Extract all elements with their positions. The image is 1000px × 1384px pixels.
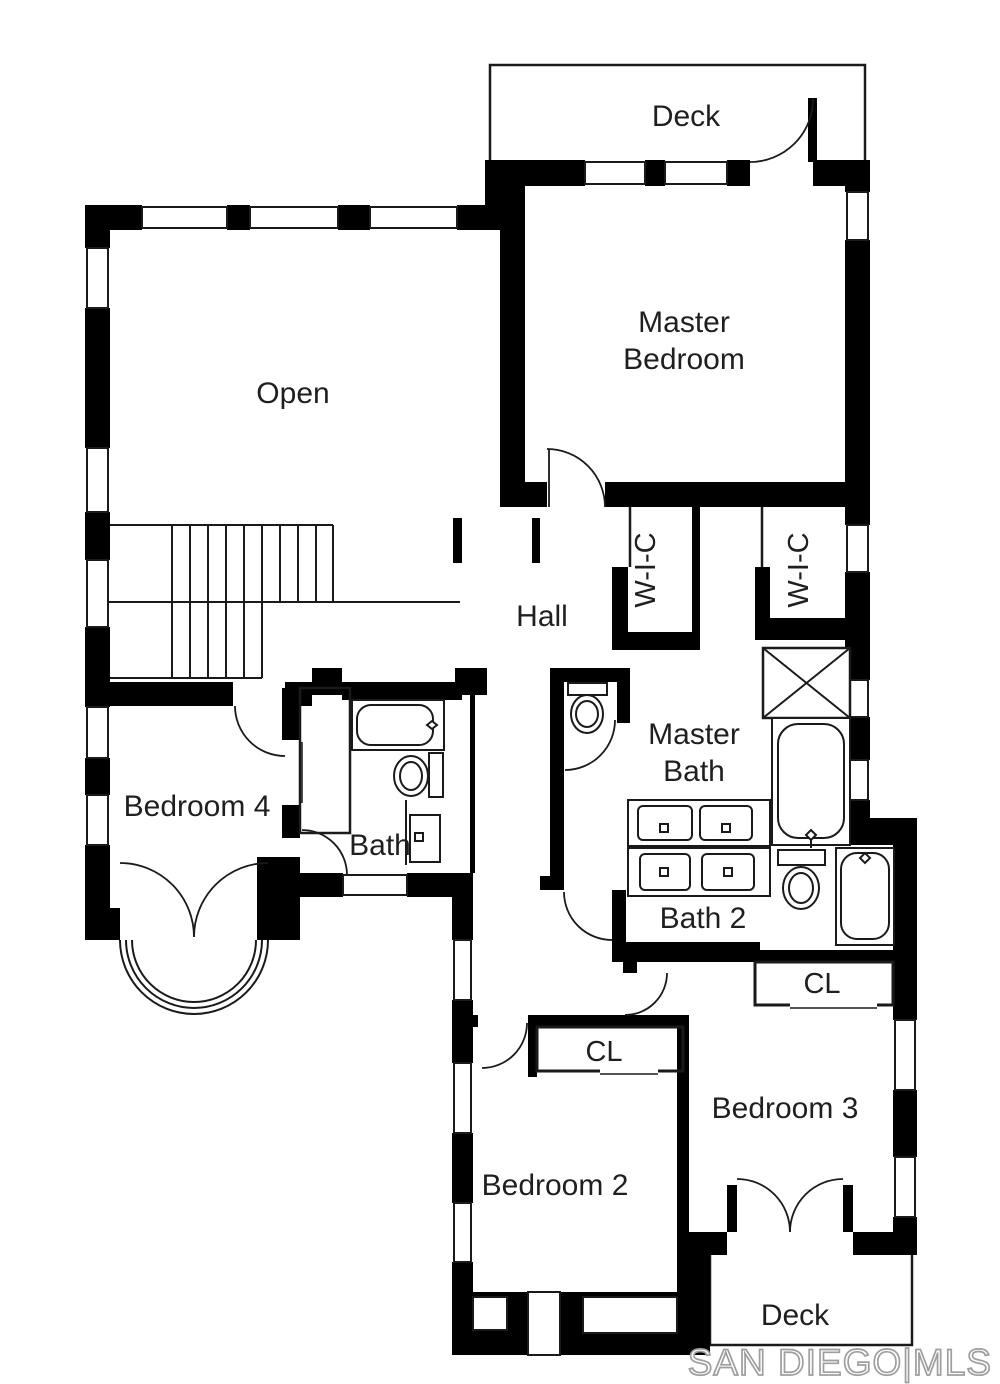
toilet-icon xyxy=(568,683,607,733)
label-open: Open xyxy=(256,377,329,410)
toilet-icon xyxy=(778,850,825,909)
label-bedroom2: Bedroom 2 xyxy=(482,1169,629,1202)
label-master-bedroom-line2: Bedroom xyxy=(623,343,745,376)
label-master-bath-line1: Master xyxy=(648,718,740,751)
bay-window xyxy=(120,940,268,1014)
label-master-bath-line2: Bath xyxy=(663,755,725,788)
bathtub-icon xyxy=(772,718,850,848)
label-master-bedroom-line1: Master xyxy=(638,306,730,339)
label-deck-top: Deck xyxy=(652,100,721,133)
sink-icon xyxy=(406,800,440,865)
label-cl-bedroom3: CL xyxy=(803,968,840,1000)
label-bath: Bath xyxy=(349,829,411,862)
doors xyxy=(120,99,843,1232)
label-cl-bedroom2: CL xyxy=(585,1036,622,1068)
label-bedroom4: Bedroom 4 xyxy=(124,790,271,823)
label-hall: Hall xyxy=(516,600,568,633)
toilet-icon xyxy=(394,753,443,797)
shower-icon xyxy=(763,648,850,718)
label-wic-left: W-I-C xyxy=(630,532,662,607)
floor-plan: Deck Master Bedroom Open Hall W-I-C W-I-… xyxy=(0,0,1000,1384)
double-vanity-icon xyxy=(628,800,770,846)
double-vanity-icon xyxy=(628,848,770,896)
label-bath2: Bath 2 xyxy=(660,902,747,935)
bathtub-icon xyxy=(352,700,444,750)
label-wic-right: W-I-C xyxy=(783,532,815,607)
staircase xyxy=(108,525,460,678)
bathtub-icon xyxy=(836,848,894,945)
label-deck-bottom: Deck xyxy=(761,1299,830,1332)
mls-watermark: SAN DIEGO|MLS xyxy=(688,1342,992,1383)
label-bedroom3: Bedroom 3 xyxy=(712,1092,859,1125)
